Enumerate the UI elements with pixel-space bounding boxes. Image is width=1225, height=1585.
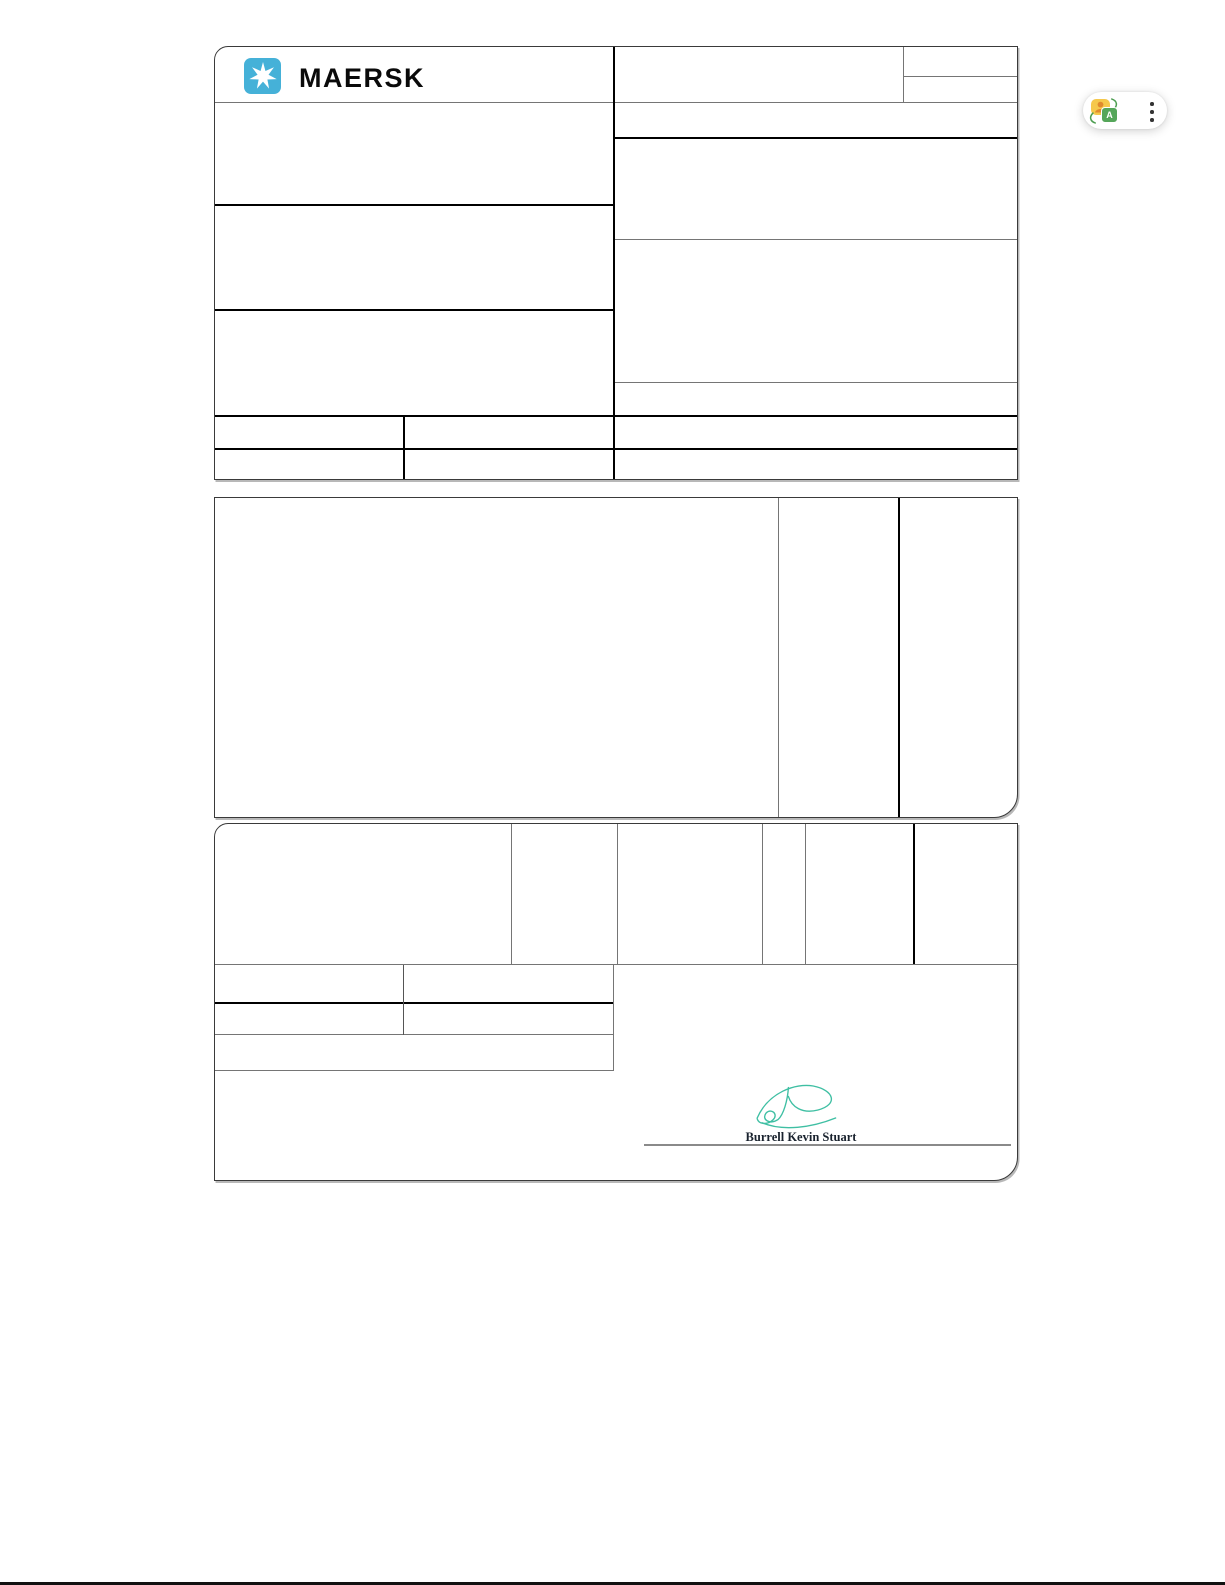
charge-basis-cell (513, 824, 616, 963)
measurement-cell (901, 498, 1013, 817)
freight-detail-cell-4 (405, 1004, 613, 1033)
carrier-agent-cell (615, 139, 1015, 239)
maersk-wordmark: MAERSK (299, 63, 425, 94)
notify-party-cell (215, 311, 613, 415)
grid-line (805, 824, 806, 964)
grid-line (778, 498, 779, 817)
freight-detail-cell-2 (405, 965, 613, 1001)
kebab-dot (1150, 118, 1154, 122)
kebab-dot (1150, 110, 1154, 114)
voyage-cell (405, 416, 613, 448)
header-ref-bottom-cell (904, 77, 1015, 102)
kebab-menu-button[interactable] (1150, 102, 1154, 126)
goods-description-cell (215, 498, 777, 817)
carrier-header-cell (615, 47, 901, 102)
port-of-loading-cell (615, 416, 1015, 448)
port-cell-left (215, 449, 403, 478)
port-cell-mid (405, 449, 613, 478)
vessel-cell (215, 416, 403, 448)
freight-detail-cell-3 (215, 1004, 402, 1033)
onward-routing-cell (615, 383, 1015, 415)
grid-line (215, 1034, 614, 1035)
grid-line (613, 965, 614, 1071)
grid-line (762, 824, 763, 964)
page: MAERSK (0, 0, 1225, 1585)
charge-rate-cell (619, 824, 761, 963)
header-box: MAERSK (214, 46, 1018, 480)
signature-ink (739, 1078, 857, 1138)
translate-arrow-icon (1088, 112, 1097, 124)
charge-collect-cell (915, 824, 1015, 963)
booking-ref-row-cell (615, 103, 1015, 137)
translate-target-icon: A (1101, 107, 1118, 123)
weight-cell (780, 498, 897, 817)
charge-currency-cell (764, 824, 804, 963)
grid-line (617, 824, 618, 964)
charge-prepaid-cell (807, 824, 912, 963)
grid-line (215, 1070, 614, 1071)
kebab-dot (1150, 102, 1154, 106)
cargo-particulars-box (214, 497, 1018, 818)
maersk-star-icon (244, 58, 281, 94)
logo-cell: MAERSK (215, 47, 613, 102)
grid-line (511, 824, 512, 964)
signer-name: Burrell Kevin Stuart (731, 1130, 871, 1145)
consignee-cell (215, 206, 613, 309)
port-of-discharge-cell (615, 449, 1015, 478)
translate-button[interactable]: A (1090, 97, 1120, 124)
signature-area (615, 965, 1015, 1180)
extension-overlay: A (1083, 92, 1167, 129)
grid-line (898, 498, 900, 817)
freight-detail-cell-1 (215, 965, 402, 1001)
seven-point-star (248, 61, 278, 91)
grid-line (403, 965, 404, 1035)
charges-signature-box: Burrell Kevin Stuart (214, 823, 1018, 1181)
routing-details-cell (615, 240, 1015, 382)
shipper-cell (215, 103, 613, 204)
charge-type-cell (215, 824, 510, 963)
header-ref-top-cell (904, 47, 1015, 75)
place-date-of-issue-cell (215, 1036, 613, 1069)
